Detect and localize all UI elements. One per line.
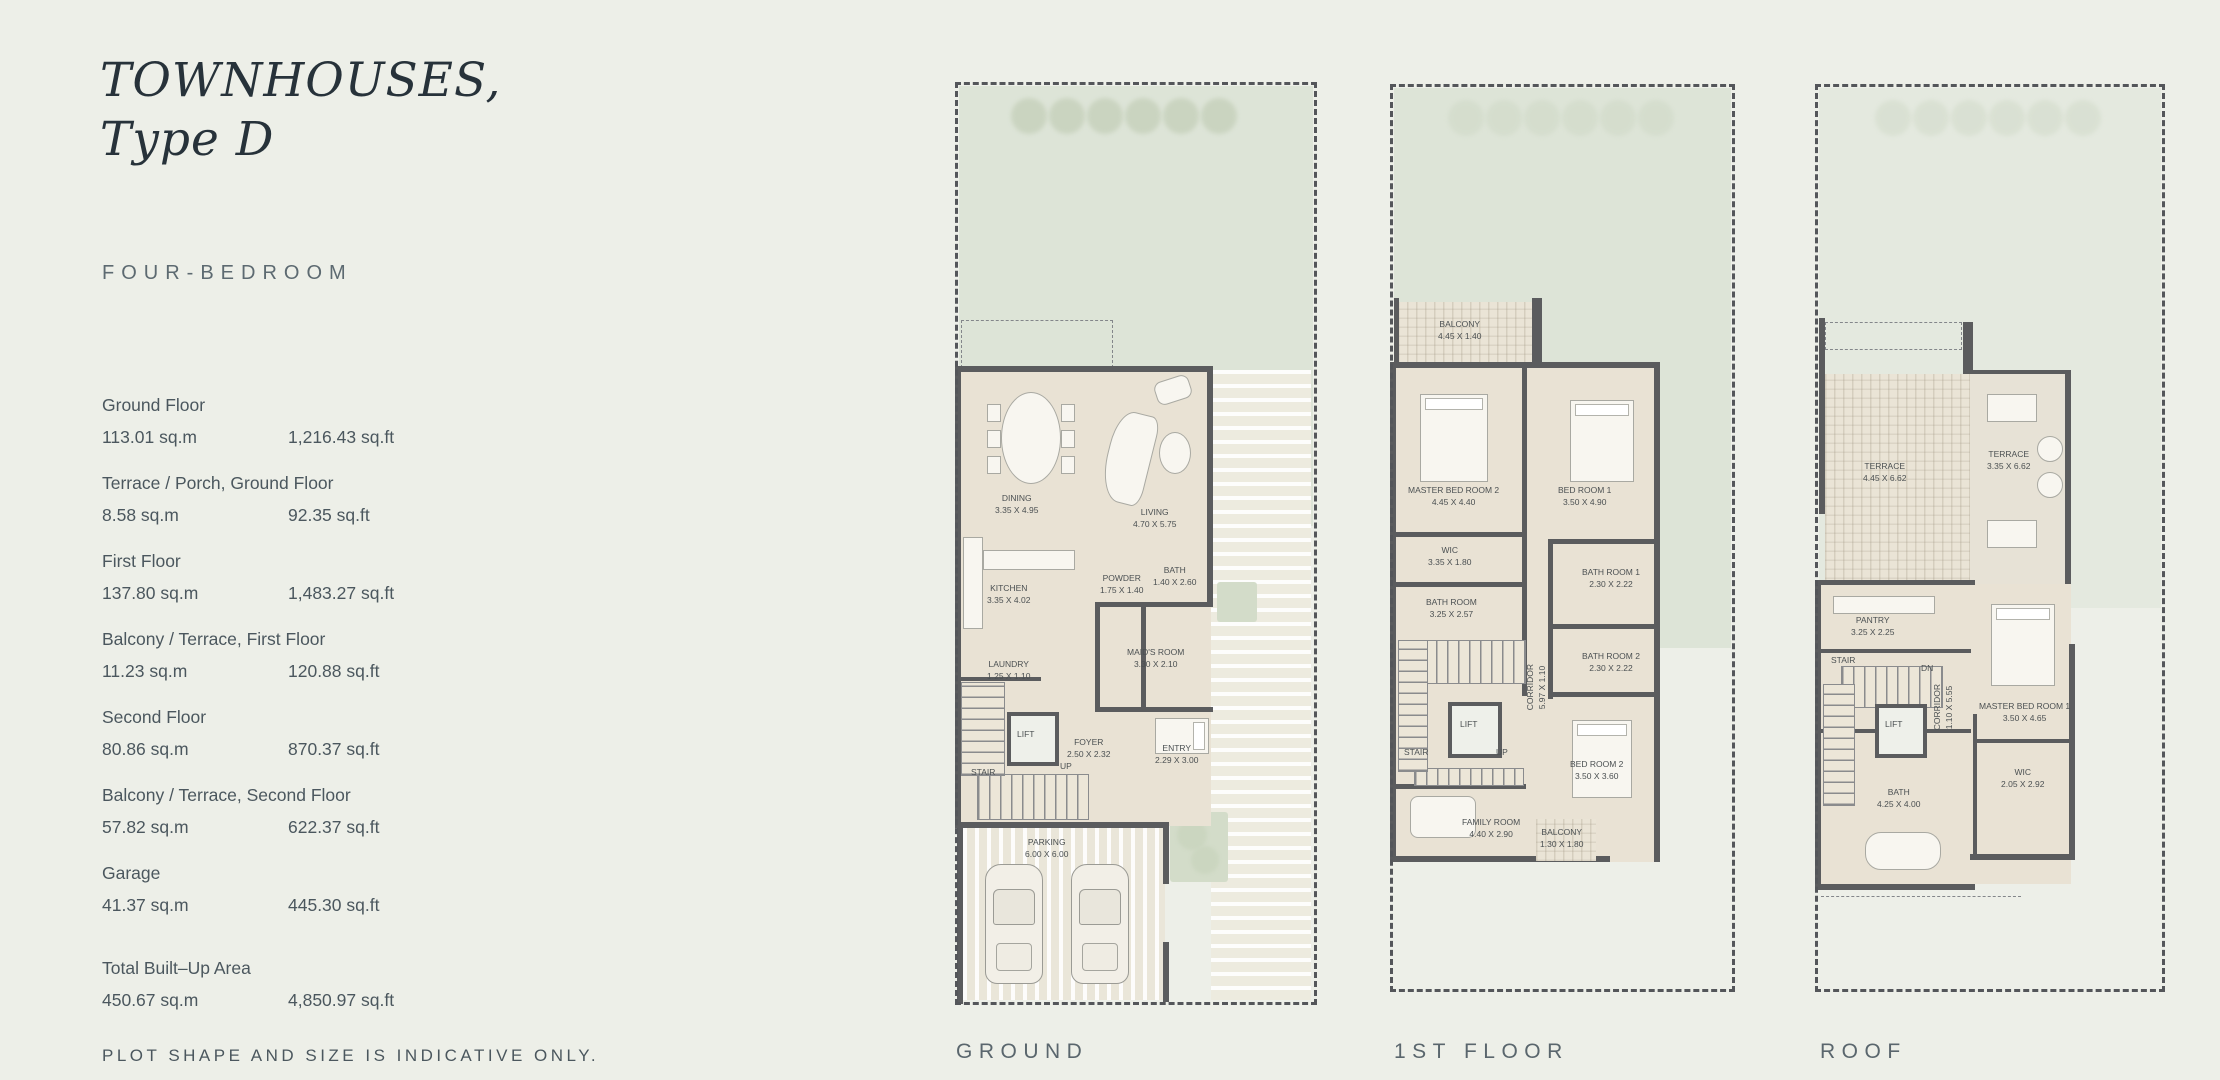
room-label-maids-room: MAID'S ROOM3.30 X 2.10: [1127, 648, 1184, 670]
lift-shaft: [1448, 702, 1502, 758]
outdoor-chair: [2037, 436, 2063, 462]
room-label-bed-room-1: BED ROOM 13.50 X 4.90: [1558, 486, 1611, 508]
dining-table: [1001, 392, 1061, 484]
lift-shaft: [1875, 704, 1927, 758]
area-specs-list: Ground Floor 113.01 sq.m1,216.43 sq.ft T…: [102, 395, 462, 1036]
room-label-dn: DN: [1921, 664, 1933, 674]
title-line2: Type D: [100, 111, 501, 170]
page-title: TOWNHOUSES, Type D: [100, 52, 501, 170]
room-label-wic: WIC2.05 X 2.92: [2001, 768, 2044, 790]
chair: [1061, 456, 1075, 474]
room-label-powder: POWDER1.75 X 1.40: [1100, 574, 1143, 596]
kitchen-counter: [983, 550, 1075, 570]
room-label-kitchen: KITCHEN3.35 X 4.02: [987, 584, 1030, 606]
room-label-terrace: TERRACE3.35 X 6.62: [1987, 450, 2030, 472]
room-label-balcony-small: BALCONY1.30 X 1.80: [1540, 828, 1583, 850]
area-row-total: Total Built–Up Area 450.67 sq.m4,850.97 …: [102, 958, 462, 1011]
room-label-living: LIVING4.70 X 5.75: [1133, 508, 1176, 530]
outdoor-chair: [2037, 472, 2063, 498]
bed: [1991, 604, 2055, 686]
area-sqft: 622.37 sq.ft: [288, 817, 379, 838]
outdoor-sofa: [1987, 394, 2037, 422]
chair: [987, 404, 1001, 422]
room-label-master-bed-1: MASTER BED ROOM 13.50 X 4.65: [1979, 702, 2070, 724]
area-label: Ground Floor: [102, 395, 462, 416]
area-sqm: 57.82 sq.m: [102, 817, 288, 838]
area-label: Second Floor: [102, 707, 462, 728]
area-row-ground-floor: Ground Floor 113.01 sq.m1,216.43 sq.ft: [102, 395, 462, 448]
plan-caption-ground: GROUND: [956, 1040, 1088, 1064]
plan-caption-roof: ROOF: [1820, 1040, 1907, 1064]
kitchen-counter: [963, 537, 983, 629]
chair: [987, 430, 1001, 448]
room-label-terrace-open: TERRACE4.45 X 6.62: [1863, 462, 1906, 484]
room-label-master-bed-2: MASTER BED ROOM 24.45 X 4.40: [1408, 486, 1499, 508]
room-label-bath-room: BATH ROOM3.25 X 2.57: [1426, 598, 1477, 620]
armchair: [1159, 432, 1191, 474]
room-label-parking: PARKING6.00 X 6.00: [1025, 838, 1068, 860]
bed: [1420, 394, 1488, 482]
chair: [987, 456, 1001, 474]
room-label-bed-room-2: BED ROOM 23.50 X 3.60: [1570, 760, 1623, 782]
room-label-foyer: FOYER2.50 X 2.32: [1067, 738, 1110, 760]
area-sqm: 450.67 sq.m: [102, 990, 288, 1011]
area-row-balcony-first: Balcony / Terrace, First Floor 11.23 sq.…: [102, 629, 462, 682]
room-label-entry: ENTRY2.29 X 3.00: [1155, 744, 1198, 766]
chair: [1061, 404, 1075, 422]
area-sqm: 80.86 sq.m: [102, 739, 288, 760]
title-line1: TOWNHOUSES,: [100, 52, 501, 111]
room-label-corridor: CORRIDOR5.97 X 1.10: [1526, 664, 1548, 710]
room-label-up: UP: [1496, 748, 1508, 758]
area-label: Balcony / Terrace, First Floor: [102, 629, 462, 650]
car-icon: [985, 864, 1043, 984]
area-row-first-floor: First Floor 137.80 sq.m1,483.27 sq.ft: [102, 551, 462, 604]
area-row-terrace-ground: Terrace / Porch, Ground Floor 8.58 sq.m9…: [102, 473, 462, 526]
outdoor-sofa: [1987, 520, 2037, 548]
area-sqm: 113.01 sq.m: [102, 427, 288, 448]
area-sqft: 1,483.27 sq.ft: [288, 583, 394, 604]
area-label: Garage: [102, 863, 462, 884]
room-label-up: UP: [1060, 762, 1072, 772]
area-row-garage: Garage 41.37 sq.m445.30 sq.ft: [102, 863, 462, 916]
area-label: Terrace / Porch, Ground Floor: [102, 473, 462, 494]
brochure-page: TOWNHOUSES, Type D FOUR-BEDROOM Ground F…: [0, 0, 2220, 1080]
floorplan-roof: TERRACE4.45 X 6.62 TERRACE3.35 X 6.62 PA…: [1815, 84, 2165, 992]
area-sqm: 11.23 sq.m: [102, 661, 288, 682]
room-label-bath-room-1: BATH ROOM 12.30 X 2.22: [1582, 568, 1640, 590]
area-sqft: 1,216.43 sq.ft: [288, 427, 394, 448]
room-label-lift: LIFT: [1885, 720, 1902, 730]
floorplan-ground: DINING3.35 X 4.95 LIVING4.70 X 5.75 KITC…: [955, 82, 1317, 1005]
room-label-bath: BATH4.25 X 4.00: [1877, 788, 1920, 810]
area-row-balcony-second: Balcony / Terrace, Second Floor 57.82 sq…: [102, 785, 462, 838]
disclaimer-note: PLOT SHAPE AND SIZE IS INDICATIVE ONLY.: [102, 1046, 599, 1066]
plot-boundary: [1390, 84, 1735, 992]
car-icon: [1071, 864, 1129, 984]
area-sqm: 137.80 sq.m: [102, 583, 288, 604]
room-label-stair: STAIR: [1404, 748, 1428, 758]
room-label-family-room: FAMILY ROOM4.40 X 2.90: [1462, 818, 1520, 840]
area-label: Balcony / Terrace, Second Floor: [102, 785, 462, 806]
room-label-balcony: BALCONY4.45 X 1.40: [1438, 320, 1481, 342]
area-sqft: 870.37 sq.ft: [288, 739, 379, 760]
floorplan-first: BALCONY4.45 X 1.40 MASTER BED ROOM 24.45…: [1390, 84, 1735, 992]
chair: [1061, 430, 1075, 448]
area-sqft: 445.30 sq.ft: [288, 895, 379, 916]
room-label-laundry: LAUNDRY1.25 X 1.10: [987, 660, 1030, 682]
bathtub: [1865, 832, 1941, 870]
area-label: First Floor: [102, 551, 462, 572]
room-label-bath: BATH1.40 X 2.60: [1153, 566, 1196, 588]
room-label-stair: STAIR: [1831, 656, 1855, 666]
room-label-bath-room-2: BATH ROOM 22.30 X 2.22: [1582, 652, 1640, 674]
subtitle-bedrooms: FOUR-BEDROOM: [102, 262, 353, 285]
plan-caption-first: 1ST FLOOR: [1394, 1040, 1569, 1064]
pantry-counter: [1833, 596, 1935, 614]
bed: [1570, 400, 1634, 482]
room-label-dining: DINING3.35 X 4.95: [995, 494, 1038, 516]
area-sqft: 4,850.97 sq.ft: [288, 990, 394, 1011]
room-label-lift: LIFT: [1460, 720, 1477, 730]
area-sqft: 92.35 sq.ft: [288, 505, 370, 526]
room-label-stair: STAIR: [971, 768, 995, 778]
room-label-pantry: PANTRY3.25 X 2.25: [1851, 616, 1894, 638]
area-sqm: 41.37 sq.m: [102, 895, 288, 916]
area-sqm: 8.58 sq.m: [102, 505, 288, 526]
area-row-second-floor: Second Floor 80.86 sq.m870.37 sq.ft: [102, 707, 462, 760]
room-label-lift: LIFT: [1017, 730, 1034, 740]
room-label-wic: WIC3.35 X 1.80: [1428, 546, 1471, 568]
room-label-corridor: CORRIDOR1.10 X 5.55: [1933, 684, 1955, 730]
area-sqft: 120.88 sq.ft: [288, 661, 379, 682]
area-label: Total Built–Up Area: [102, 958, 462, 979]
